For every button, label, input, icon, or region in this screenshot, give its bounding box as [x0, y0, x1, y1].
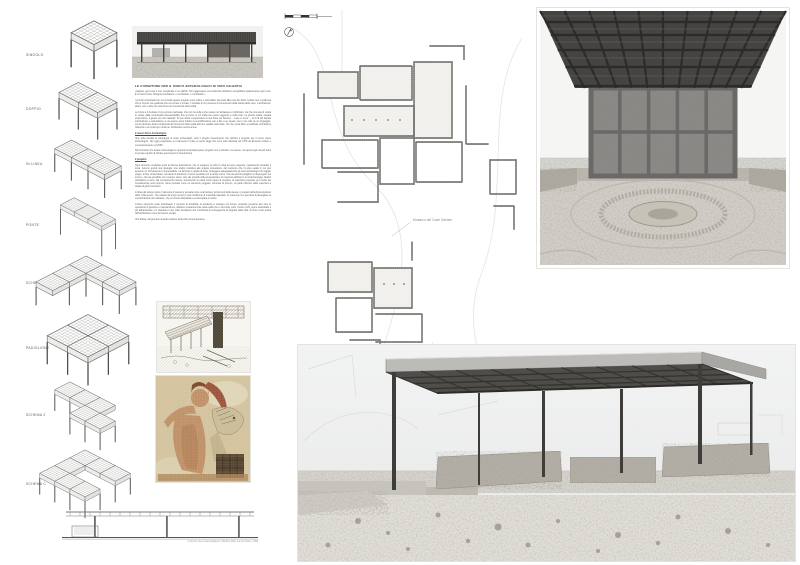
essay-subhead: Il nuovo Parco Archeologico: [135, 133, 271, 136]
essay-paragraph: A l'idea del campo visivo, l'elemento di…: [135, 192, 271, 201]
engraving-wall: [163, 306, 244, 318]
scheme-diagram: [38, 138, 138, 200]
plan-label: Mosaico del Case Gerden: [392, 218, 452, 236]
presentation-board: SINGOLODOPPIOIN LINEAPONTESCHEMA LPADIGL…: [0, 0, 800, 565]
section-drawing: [60, 500, 260, 544]
essay-paragraph: I principi concettuali con cui si fonda …: [135, 100, 271, 109]
essay-paragraph: Ogni elemento modulare gode di diverse d…: [135, 165, 271, 190]
scheme-row: PADIGLIONE: [24, 312, 156, 388]
scheme-diagram: [38, 196, 138, 258]
scheme-diagram: [34, 250, 138, 320]
scheme-diagram: [54, 18, 134, 82]
render-canopy-elevation: [132, 26, 263, 78]
roof-beam-ticks: [70, 512, 250, 516]
essay-paragraph: Dal momento che la fase archeologica è a…: [135, 150, 271, 156]
plan-room-fills: [318, 62, 452, 308]
scheme-row: SCHEMA L: [24, 250, 156, 320]
essay-subhead: Il progetto: [135, 159, 271, 162]
scheme-diagram: [38, 80, 138, 142]
section-caption: confronto: Neue Nationalgalerie di Berli…: [60, 541, 258, 543]
essay-paragraph: L'intero elemento vuole sottolineare il …: [135, 204, 271, 216]
scheme-diagram: [30, 380, 140, 452]
scheme-label: SINGOLO: [26, 53, 44, 57]
engraving-figure: [157, 302, 250, 372]
ceiling-coffer-grid: [540, 11, 786, 88]
essay-column: LE COPERTURE PER IL PARCO ARCHEOLOGICO D…: [135, 84, 271, 224]
render-under-canopy: [537, 8, 789, 268]
section-column: [166, 516, 168, 537]
mosaic-figure: [156, 376, 250, 482]
board-title: LE COPERTURE PER IL PARCO ARCHEOLOGICO D…: [135, 84, 271, 88]
north-arrow-icon: [285, 28, 294, 37]
scheme-row: SCHEMA 2: [24, 380, 156, 452]
scale-bar: [285, 14, 332, 20]
essay-closing: Una difesa, dal perenne assedio estetico…: [135, 219, 271, 222]
render-ground: [132, 57, 263, 78]
section-column: [238, 516, 240, 537]
essay-paragraph: Una volta avviata la campagna di scavi a…: [135, 138, 271, 147]
essay-paragraph: La forma è il risultato di un percorso r…: [135, 112, 271, 131]
render-canopy-over-ruins: [298, 345, 795, 561]
canopy-soffit-edge: [137, 42, 256, 44]
scheme-diagram: [40, 312, 136, 388]
mies-quote: «Sapete, ogni cosa è così complicata in …: [135, 91, 271, 97]
svg-text:Mosaico del Case Gerden: Mosaico del Case Gerden: [413, 218, 452, 222]
